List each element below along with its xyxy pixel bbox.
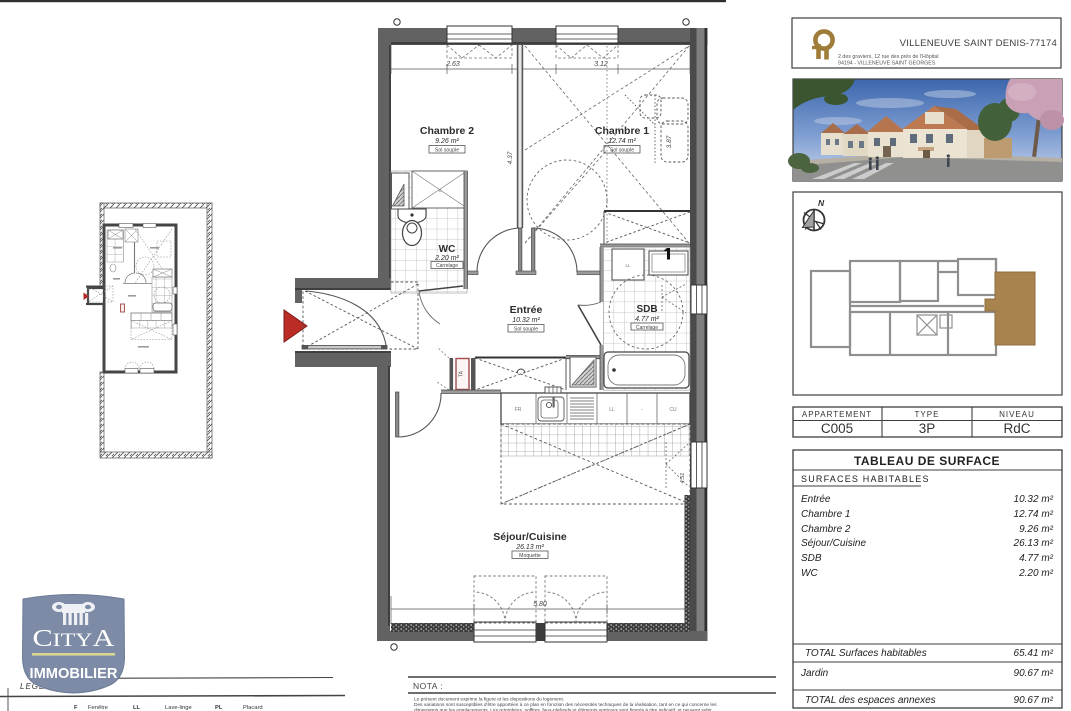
svg-text:Jardin: Jardin: [800, 668, 829, 679]
svg-text:Carrelage: Carrelage: [436, 263, 458, 269]
svg-text:4.51: 4.51: [680, 473, 686, 484]
svg-text:Chambre 1: Chambre 1: [801, 509, 850, 520]
svg-text:F: F: [74, 705, 78, 711]
svg-text:Le présent document exprime la: Le présent document exprime la figure et…: [414, 697, 564, 703]
svg-text:PL: PL: [215, 705, 223, 711]
svg-text:10.32 m²: 10.32 m²: [512, 317, 540, 324]
svg-text:TOTAL Surfaces habitables: TOTAL Surfaces habitables: [805, 648, 927, 659]
svg-text:C005: C005: [821, 421, 853, 436]
svg-text:Séjour/Cuisine: Séjour/Cuisine: [801, 538, 866, 549]
svg-text:90.67 m²: 90.67 m²: [1014, 668, 1054, 679]
svg-text:CITYA: CITYA: [33, 626, 116, 652]
svg-text:B: B: [438, 188, 441, 193]
svg-text:SURFACES HABITABLES: SURFACES HABITABLES: [801, 474, 930, 484]
svg-text:Carrelage: Carrelage: [636, 325, 658, 331]
svg-text:65.41 m²: 65.41 m²: [1014, 648, 1054, 659]
svg-text:Moquette: Moquette: [519, 553, 541, 559]
svg-text:CU: CU: [669, 407, 677, 413]
svg-text:TA: TA: [459, 370, 465, 377]
svg-text:10.32 m²: 10.32 m²: [1014, 494, 1054, 505]
svg-text:Sol souple: Sol souple: [514, 327, 538, 333]
svg-text:9.26 m²: 9.26 m²: [1019, 524, 1054, 535]
svg-text:Sol souple: Sol souple: [610, 148, 634, 154]
svg-text:SDB: SDB: [636, 304, 657, 315]
svg-text:LL: LL: [625, 263, 631, 268]
svg-text:SDB: SDB: [801, 553, 822, 564]
svg-text:Entrée: Entrée: [510, 304, 543, 316]
svg-text:Placard: Placard: [243, 705, 263, 711]
svg-text:Séjour/Cuisine: Séjour/Cuisine: [493, 531, 567, 543]
svg-text:NOTA :: NOTA :: [413, 681, 443, 691]
svg-text:3.87: 3.87: [666, 135, 673, 148]
svg-text:26.13 m²: 26.13 m²: [515, 544, 544, 551]
svg-text:3.12: 3.12: [594, 61, 608, 68]
svg-text:Entrée: Entrée: [801, 494, 831, 505]
svg-text:4.77 m²: 4.77 m²: [1019, 553, 1054, 564]
svg-text:2.63: 2.63: [445, 61, 460, 68]
svg-text:N: N: [818, 198, 825, 208]
svg-text:3P: 3P: [919, 421, 936, 436]
svg-text:4.77 m²: 4.77 m²: [635, 316, 659, 323]
svg-text:dimensions que les emplacement: dimensions que les emplacements. Les ret…: [414, 708, 712, 711]
svg-text:26.13 m²: 26.13 m²: [1013, 538, 1054, 549]
svg-text:Chambre 2: Chambre 2: [801, 524, 851, 535]
svg-text:TABLEAU DE SURFACE: TABLEAU DE SURFACE: [854, 454, 1000, 468]
svg-text:TOTAL des espaces annexes: TOTAL des espaces annexes: [805, 695, 936, 706]
svg-text:WC: WC: [801, 568, 818, 579]
svg-text:LL: LL: [609, 407, 615, 413]
svg-text:94194 - VILLENEUVE SAINT GEORG: 94194 - VILLENEUVE SAINT GEORGES: [838, 61, 936, 67]
svg-text:NIVEAU: NIVEAU: [999, 410, 1035, 419]
svg-text:12.74 m²: 12.74 m²: [608, 138, 636, 145]
svg-text:Chambre 2: Chambre 2: [420, 125, 474, 137]
svg-text:12.74 m²: 12.74 m²: [1014, 509, 1054, 520]
svg-text:FR: FR: [515, 407, 522, 413]
svg-text:2.20 m²: 2.20 m²: [434, 255, 459, 262]
svg-text:5.80: 5.80: [533, 601, 547, 608]
svg-text:VILLENEUVE SAINT DENIS-77174: VILLENEUVE SAINT DENIS-77174: [900, 38, 1058, 49]
svg-text:Fenêtre: Fenêtre: [88, 705, 108, 711]
svg-text:Des variations sont susceptibl: Des variations sont susceptibles d'être …: [414, 702, 717, 708]
svg-text:9.26 m²: 9.26 m²: [435, 138, 459, 145]
svg-text:4.37: 4.37: [507, 151, 514, 164]
svg-text:90.67 m²: 90.67 m²: [1014, 695, 1054, 706]
svg-text:WC: WC: [439, 244, 456, 255]
svg-text:TYPE: TYPE: [915, 410, 940, 419]
svg-text:RdC: RdC: [1003, 421, 1030, 436]
svg-text:LL: LL: [133, 705, 141, 711]
svg-text:Lave-linge: Lave-linge: [165, 705, 192, 711]
svg-text:2.20 m²: 2.20 m²: [1018, 568, 1054, 579]
svg-text:2 des graviers, 12 rue des pré: 2 des graviers, 12 rue des prés de l'Hôp…: [838, 54, 939, 60]
svg-text:APPARTEMENT: APPARTEMENT: [802, 410, 872, 419]
svg-text:Sol souple: Sol souple: [435, 148, 459, 154]
svg-text:IMMOBILIER: IMMOBILIER: [30, 665, 118, 682]
